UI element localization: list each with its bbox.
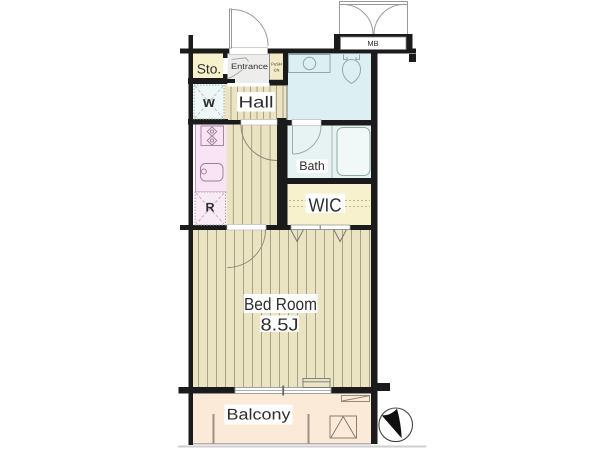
svg-text:Bath: Bath <box>299 159 325 173</box>
svg-text:PuSH: PuSH <box>271 62 282 67</box>
svg-text:WIC: WIC <box>309 196 342 217</box>
svg-text:Hall: Hall <box>239 95 274 112</box>
svg-text:8.5J: 8.5J <box>261 315 299 335</box>
svg-text:w: w <box>202 94 215 111</box>
svg-text:Bed Room: Bed Room <box>244 294 317 314</box>
svg-text:Entrance: Entrance <box>231 62 269 71</box>
svg-text:CN: CN <box>274 68 280 73</box>
svg-text:Sto.: Sto. <box>197 61 222 76</box>
svg-text:R: R <box>205 201 214 215</box>
svg-text:MB: MB <box>367 39 378 48</box>
svg-text:Balcony: Balcony <box>227 407 291 424</box>
